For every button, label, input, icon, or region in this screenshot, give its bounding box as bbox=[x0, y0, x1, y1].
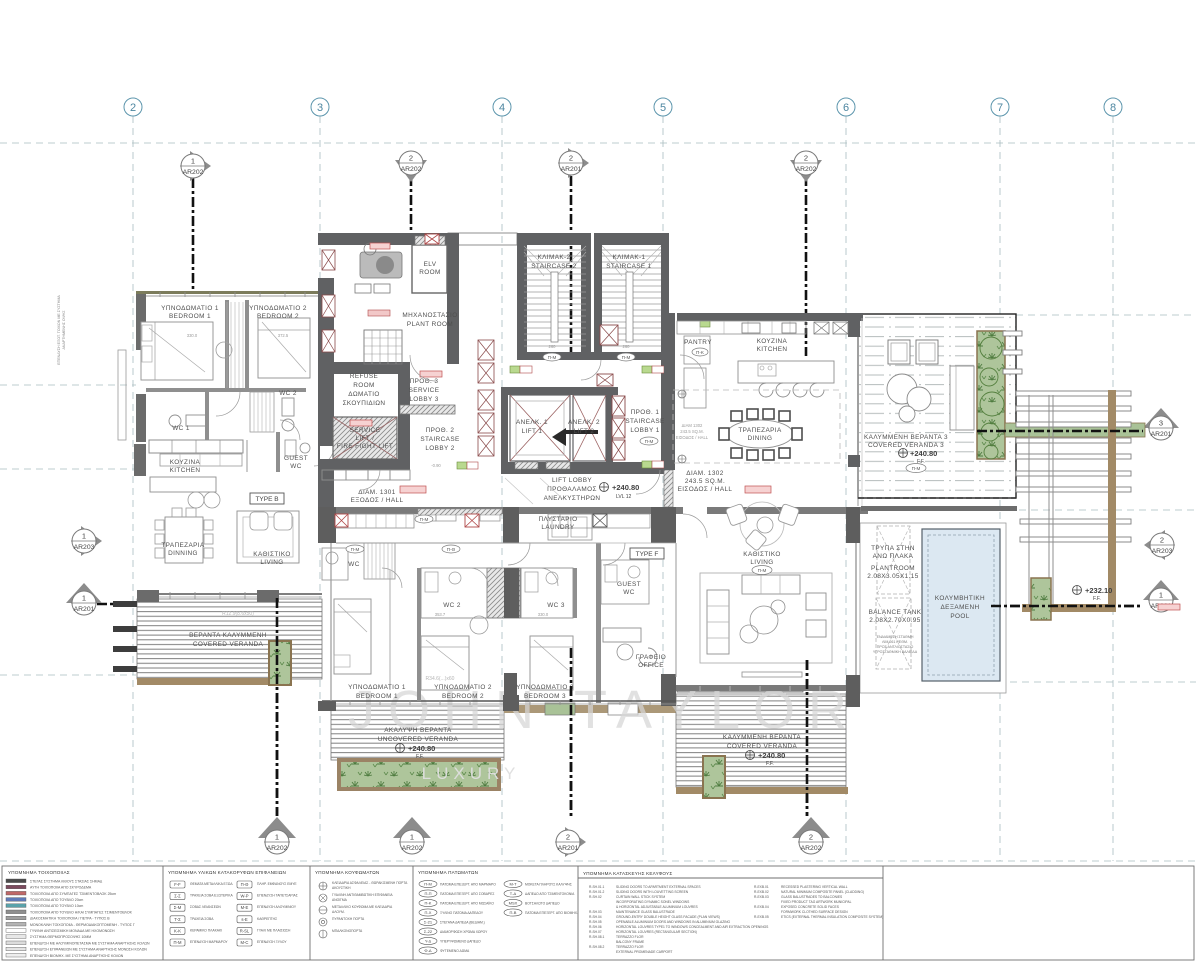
svg-text:BEDROOM 3: BEDROOM 3 bbox=[524, 693, 566, 700]
svg-text:ΔΙΑΜΟΡΦΩΣΗ ΧΡΩΜΑ ΧΩΡΟΥ: ΔΙΑΜΟΡΦΩΣΗ ΧΡΩΜΑ ΧΩΡΟΥ bbox=[440, 930, 488, 934]
svg-text:DINNING: DINNING bbox=[168, 550, 198, 557]
svg-text:ΑΝΕΛΚ. 2: ΑΝΕΛΚ. 2 bbox=[568, 419, 600, 426]
svg-text:ΥΓΡΟΣΤΑΘΜΙΚΗ ΒΑΛΒΙΔΑ: ΥΓΡΟΣΤΑΘΜΙΚΗ ΒΑΛΒΙΔΑ bbox=[873, 650, 918, 654]
svg-text:LIFT 2: LIFT 2 bbox=[574, 428, 595, 435]
svg-text:ΠΑΤΩΜΑ ΕΠΕΞΕΡΓ. ΑΠΟ ΜΑΡΜΑΡΟ: ΠΑΤΩΜΑ ΕΠΕΞΕΡΓ. ΑΠΟ ΜΑΡΜΑΡΟ bbox=[440, 883, 496, 887]
svg-text:Σ-21: Σ-21 bbox=[424, 920, 433, 925]
svg-text:1: 1 bbox=[82, 532, 86, 541]
svg-text:AR201: AR201 bbox=[558, 845, 579, 852]
svg-text:AR202: AR202 bbox=[401, 166, 422, 173]
svg-text:ΚΑΘΙΣΤΙΚΟ: ΚΑΘΙΣΤΙΚΟ bbox=[253, 551, 290, 558]
svg-text:ΔΙΑΚΟΣΜΗΤΙΚΗ ΤΟΙΧΟΠΟΙΙΑ / ΠΕΤΡ: ΔΙΑΚΟΣΜΗΤΙΚΗ ΤΟΙΧΟΠΟΙΙΑ / ΠΕΤΡΑ - ΤΥΠΟΣ … bbox=[30, 917, 110, 921]
svg-text:F-F: F-F bbox=[174, 882, 181, 887]
svg-text:ΤΡΑΧΕΙΑ ΣΟΒΑ ΕΞΩΤΕΡΙΚΑ: ΤΡΑΧΕΙΑ ΣΟΒΑ ΕΞΩΤΕΡΙΚΑ bbox=[190, 894, 233, 898]
svg-text:ΥΠΝΟΔΩΜΑΤΙΟ 2: ΥΠΝΟΔΩΜΑΤΙΟ 2 bbox=[434, 684, 492, 691]
svg-text:ΓΥΑΛΙΝΗ ΑΝΤΙΘΑΜΒΩΤΙΚΗ ΕΠΙΦΑΝΕΙ: ΓΥΑΛΙΝΗ ΑΝΤΙΘΑΜΒΩΤΙΚΗ ΕΠΙΦΑΝΕΙΑ bbox=[332, 893, 393, 897]
svg-text:BALCONY FRAME: BALCONY FRAME bbox=[616, 940, 645, 944]
svg-text:ΚΟΥΖΙΝΑ: ΚΟΥΖΙΝΑ bbox=[170, 459, 201, 466]
svg-text:Μ-Τ: Μ-Τ bbox=[509, 882, 517, 887]
svg-text:TYPE B: TYPE B bbox=[255, 496, 278, 503]
svg-text:AR203: AR203 bbox=[74, 544, 95, 551]
svg-text:LAUNDRY: LAUNDRY bbox=[541, 524, 575, 531]
svg-text:372.5: 372.5 bbox=[278, 333, 289, 338]
svg-text:R-SH.01.2: R-SH.01.2 bbox=[589, 890, 605, 894]
svg-text:ΕΠΕΝΔΥΣΗ ΒΙΟΜΗΧ. ΜΕ ΣΥΣΤΗΜΑ ΑΝ: ΕΠΕΝΔΥΣΗ ΒΙΟΜΗΧ. ΜΕ ΣΥΣΤΗΜΑ ΑΝΑΡΤΗΣΗΣ ΚΟ… bbox=[30, 954, 124, 958]
svg-text:WC 2: WC 2 bbox=[279, 390, 297, 397]
svg-text:ΚΛΙΜΑΚ-1: ΚΛΙΜΑΚ-1 bbox=[612, 254, 645, 261]
svg-text:SLIDING DOORS TO APARTMENT EXT: SLIDING DOORS TO APARTMENT EXTERNAL SPAC… bbox=[616, 885, 701, 889]
svg-text:LUXURY: LUXURY bbox=[422, 764, 521, 783]
svg-text:1: 1 bbox=[82, 594, 86, 603]
svg-text:Π-Μ: Π-Μ bbox=[758, 568, 767, 573]
svg-text:HORIZONTAL LOUVRES (RECTANGULA: HORIZONTAL LOUVRES (RECTANGULAR SECTION) bbox=[616, 930, 697, 934]
svg-text:TYPE F: TYPE F bbox=[636, 551, 659, 558]
svg-text:WC 3: WC 3 bbox=[547, 602, 565, 609]
svg-text:R34.6(...)x60: R34.6(...)x60 bbox=[426, 676, 455, 682]
svg-text:COVERED VERANDA 3: COVERED VERANDA 3 bbox=[868, 442, 944, 449]
svg-text:+240.80: +240.80 bbox=[758, 751, 785, 760]
svg-text:PANTRY: PANTRY bbox=[684, 339, 712, 346]
svg-text:ΠΡΟΘΑΛΑΜΟΣ: ΠΡΟΘΑΛΑΜΟΣ bbox=[547, 486, 597, 493]
svg-text:3: 3 bbox=[1159, 419, 1163, 428]
svg-text:ΥΠΕΡΥΨΩΜΕΝΟ ΔΑΠΕΔΟ: ΥΠΕΡΥΨΩΜΕΝΟ ΔΑΠΕΔΟ bbox=[440, 940, 481, 944]
svg-text:ROOM: ROOM bbox=[353, 382, 374, 389]
svg-text:ΠΡΟΘ. 3: ΠΡΟΘ. 3 bbox=[410, 378, 439, 385]
svg-text:HORIZONTAL LOUVRES TYPE1 TO WI: HORIZONTAL LOUVRES TYPE1 TO WINDOWS CONC… bbox=[616, 925, 769, 929]
svg-text:DINING: DINING bbox=[748, 435, 773, 442]
svg-text:R-SH.07: R-SH.07 bbox=[589, 930, 602, 934]
svg-text:Μ-C: Μ-C bbox=[241, 940, 249, 945]
svg-text:330.0: 330.0 bbox=[538, 612, 549, 617]
svg-text:Κ-Κ: Κ-Κ bbox=[174, 928, 181, 933]
svg-text:ΕΠΕΝΔΥΣΗ ΕΠΙΦΑΝΕΙΩΝ ΜΕ ΣΥΣΤΗΜΑ: ΕΠΕΝΔΥΣΗ ΕΠΙΦΑΝΕΙΩΝ ΜΕ ΣΥΣΤΗΜΑ ΑΝΑΡΤΗΣΗΣ… bbox=[30, 948, 147, 952]
svg-text:Π-Μ: Π-Μ bbox=[420, 517, 429, 522]
svg-text:6: 6 bbox=[843, 102, 849, 114]
svg-text:LIVING: LIVING bbox=[260, 559, 283, 566]
svg-text:TERRAZZO FLOR: TERRAZZO FLOR bbox=[616, 945, 644, 949]
svg-text:ΤΟΙΧΟΠΟΙΙΑ ΑΠΟ ΤΟΥΒΛΟ 20cm: ΤΟΙΧΟΠΟΙΙΑ ΑΠΟ ΤΟΥΒΛΟ 20cm bbox=[30, 898, 83, 902]
svg-text:LOBBY 2: LOBBY 2 bbox=[425, 445, 454, 452]
svg-text:WC: WC bbox=[348, 561, 359, 568]
svg-text:R-SH.04: R-SH.04 bbox=[589, 915, 602, 919]
svg-text:1: 1 bbox=[191, 157, 195, 166]
svg-text:AR202: AR202 bbox=[796, 166, 817, 173]
svg-text:ΜΠΑΛΚΟΝΟΠΟΡΤΑ: ΜΠΑΛΚΟΝΟΠΟΡΤΑ bbox=[332, 929, 363, 933]
svg-text:ΓΥΑΛΙ ΜΕ ΠΛΑΙΣΙΩΣΗ: ΓΥΑΛΙ ΜΕ ΠΛΑΙΣΙΩΣΗ bbox=[257, 928, 291, 932]
svg-text:ΥΠΟΜΝΗΜΑ ΚΑΤΑΣΚΕΥΗΣ ΚΕΛΥΦΟΥΣ: ΥΠΟΜΝΗΜΑ ΚΑΤΑΣΚΕΥΗΣ ΚΕΛΥΦΟΥΣ bbox=[583, 871, 672, 876]
svg-text:ΕΠΕΝΔΥΣΗ ΜΑΡΜΑΡΟΥ: ΕΠΕΝΔΥΣΗ ΜΑΡΜΑΡΟΥ bbox=[190, 940, 228, 944]
svg-text:ΠΑΤΩΜΑ ΕΠΕΞΕΡΓ. ΑΠΟ ΜΩΣΑΪΚΟ: ΠΑΤΩΜΑ ΕΠΕΞΕΡΓ. ΑΠΟ ΜΩΣΑΪΚΟ bbox=[440, 902, 494, 906]
svg-text:AR202: AR202 bbox=[267, 845, 288, 852]
svg-text:260: 260 bbox=[623, 344, 631, 349]
svg-text:F.F.: F.F. bbox=[1093, 596, 1101, 602]
svg-text:EXTERNAL PROMENADE CARPORT: EXTERNAL PROMENADE CARPORT bbox=[616, 950, 672, 954]
svg-text:GLASS BALUSTRADES TO BALCONIES: GLASS BALUSTRADES TO BALCONIES bbox=[781, 895, 843, 899]
svg-text:ΠΑΤΩΜΑ ΕΠΕΞΕΡΓ. ΑΠΟ ΣΟΒΑΡΕΣ: ΠΑΤΩΜΑ ΕΠΕΞΕΡΓ. ΑΠΟ ΣΟΒΑΡΕΣ bbox=[440, 892, 494, 896]
svg-text:ΑΚΟΥΣΤΙΚΗ: ΑΚΟΥΣΤΙΚΗ bbox=[332, 886, 351, 890]
svg-text:ETICS (EXTERNAL THERMAL INSULA: ETICS (EXTERNAL THERMAL INSULATION COMPO… bbox=[781, 915, 883, 919]
svg-text:-0.90: -0.90 bbox=[431, 463, 441, 468]
svg-text:COVERED VERANDA: COVERED VERANDA bbox=[193, 641, 264, 648]
svg-text:Σ-Μ: Σ-Μ bbox=[174, 905, 182, 910]
svg-text:ΠΥΡΑΝΤΟΧΗ ΠΟΡΤΑ: ΠΥΡΑΝΤΟΧΗ ΠΟΡΤΑ bbox=[332, 917, 365, 921]
svg-text:R-SH.05: R-SH.05 bbox=[589, 920, 602, 924]
svg-text:LOBBY 3: LOBBY 3 bbox=[409, 396, 438, 403]
svg-text:SERVICE: SERVICE bbox=[409, 387, 440, 394]
svg-text:ΑΥΤΗ ΤΟΙΧΟΠΟΙΙΑ ΑΠΟ ΣΚΥΡΟΔΕΜΑ: ΑΥΤΗ ΤΟΙΧΟΠΟΙΙΑ ΑΠΟ ΣΚΥΡΟΔΕΜΑ bbox=[30, 886, 92, 890]
svg-text:R-EXB.05: R-EXB.05 bbox=[754, 915, 769, 919]
svg-text:ΘΕΜΑΤΑ ΜΕΤΑΛΛΙΚΑ ΕΞΩΔ: ΘΕΜΑΤΑ ΜΕΤΑΛΛΙΚΑ ΕΞΩΔ bbox=[190, 882, 233, 886]
svg-text:ΤΟΙΧΟΠΟΙΙΑ ΑΠΟ ΤΟΥΒΛΟ Η/ΚΑΙ ΣΥ: ΤΟΙΧΟΠΟΙΙΑ ΑΠΟ ΤΟΥΒΛΟ Η/ΚΑΙ ΣΥΜΠΑΓΕΣ ΤΣΙ… bbox=[30, 910, 133, 914]
svg-text:ΕΠΕΝΔΥΣΗ ΑΛΟΥΜΙΝΙΟΥ: ΕΠΕΝΔΥΣΗ ΑΛΟΥΜΙΝΙΟΥ bbox=[257, 905, 297, 909]
svg-text:ΚΑΛΥΜΜΕΝΗ ΒΕΡΑΝΤΑ 3: ΚΑΛΥΜΜΕΝΗ ΒΕΡΑΝΤΑ 3 bbox=[864, 434, 948, 441]
svg-text:W-P: W-P bbox=[240, 894, 248, 899]
svg-text:LIFT 1: LIFT 1 bbox=[522, 428, 543, 435]
svg-text:2: 2 bbox=[804, 154, 808, 163]
svg-text:ΥΠΟΜΝΗΜΑ ΠΑΤΩΜΑΤΩΝ: ΥΠΟΜΝΗΜΑ ΠΑΤΩΜΑΤΩΝ bbox=[418, 870, 478, 875]
svg-text:ΔΙΑΜ 1302: ΔΙΑΜ 1302 bbox=[682, 423, 703, 428]
svg-text:Π-Μ: Π-Μ bbox=[424, 882, 432, 887]
svg-text:AR202: AR202 bbox=[801, 845, 822, 852]
svg-text:POOL: POOL bbox=[950, 613, 969, 620]
svg-text:2: 2 bbox=[569, 154, 573, 163]
svg-text:SLIDING DOORS WITH LOUVETTING: SLIDING DOORS WITH LOUVETTING SCREEN bbox=[616, 890, 689, 894]
svg-text:1: 1 bbox=[410, 833, 414, 842]
svg-text:TERRAZZO FLOR: TERRAZZO FLOR bbox=[616, 935, 644, 939]
svg-text:Π-Θ: Π-Θ bbox=[447, 547, 456, 552]
svg-text:2.08Χ3.05Χ1.15: 2.08Χ3.05Χ1.15 bbox=[867, 573, 918, 580]
svg-text:260: 260 bbox=[549, 344, 557, 349]
svg-text:+240.80: +240.80 bbox=[910, 449, 937, 458]
svg-text:ΠΡΟΣ ΑΝΤΛΙΟΣΤΑΣΙΟ: ΠΡΟΣ ΑΝΤΛΙΟΣΤΑΣΙΟ bbox=[877, 645, 914, 649]
svg-text:LOBBY 1: LOBBY 1 bbox=[630, 427, 659, 434]
svg-text:Υ-Δ: Υ-Δ bbox=[425, 939, 432, 944]
svg-text:ΕΙΣΟΔΟΣ / HALL: ΕΙΣΟΔΟΣ / HALL bbox=[678, 486, 733, 493]
svg-text:GUEST: GUEST bbox=[617, 581, 641, 588]
svg-text:Π-Κ: Π-Κ bbox=[696, 350, 705, 355]
svg-text:ΥΠΝΟΔΩΜΑΤΙΟ 3: ΥΠΝΟΔΩΜΑΤΙΟ 3 bbox=[516, 684, 574, 691]
svg-text:ΚΟΛΥΜΒΗΤΙΚΗ: ΚΟΛΥΜΒΗΤΙΚΗ bbox=[935, 595, 985, 602]
svg-text:GUEST: GUEST bbox=[284, 455, 308, 462]
svg-text:+232.10: +232.10 bbox=[1085, 586, 1112, 595]
svg-text:STAIRCASE: STAIRCASE bbox=[420, 436, 459, 443]
svg-text:ΜΟΝΟΚΛΙΝΗ ΤΟΙΧΟΠΟΙΙΑ - ΘΕΡΜΟΔΙ: ΜΟΝΟΚΛΙΝΗ ΤΟΙΧΟΠΟΙΙΑ - ΘΕΡΜΟΔΙΑΚΟΠΤΟΜΕΝΗ… bbox=[30, 923, 135, 927]
svg-text:OPENABLE ALUMINIUM DOORS AND W: OPENABLE ALUMINIUM DOORS AND WINDOWS IN … bbox=[616, 920, 731, 924]
svg-text:330.0: 330.0 bbox=[187, 333, 198, 338]
svg-text:5: 5 bbox=[660, 102, 666, 114]
svg-text:COVERED VERANDA: COVERED VERANDA bbox=[727, 743, 798, 750]
svg-text:2: 2 bbox=[409, 154, 413, 163]
svg-text:ΑΚΑΛΥΨΗ ΒΕΡΑΝΤΑ: ΑΚΑΛΥΨΗ ΒΕΡΑΝΤΑ bbox=[384, 727, 452, 734]
svg-text:2: 2 bbox=[566, 833, 570, 842]
svg-text:LIFT /: LIFT / bbox=[356, 435, 375, 442]
svg-text:ΦΥΤΕΜΕΝΟ ΔΩΜΑ: ΦΥΤΕΜΕΝΟ ΔΩΜΑ bbox=[440, 949, 470, 953]
svg-text:Π-Μ: Π-Μ bbox=[645, 439, 654, 444]
svg-text:243.5 SQ.M.: 243.5 SQ.M. bbox=[685, 478, 725, 485]
svg-text:OFFICE: OFFICE bbox=[638, 662, 664, 669]
svg-text:Π-Θ: Π-Θ bbox=[241, 882, 249, 887]
svg-text:ΑΝΟΙΓΜΑ: ΑΝΟΙΓΜΑ bbox=[332, 898, 348, 902]
svg-text:7: 7 bbox=[997, 102, 1003, 114]
svg-text:STAIRCASE 1: STAIRCASE 1 bbox=[606, 263, 652, 270]
svg-text:8: 8 bbox=[1110, 102, 1116, 114]
svg-text:REFUSE: REFUSE bbox=[350, 373, 378, 380]
svg-text:F.F.: F.F. bbox=[766, 761, 774, 767]
svg-text:ΠΡΟΘ. 1: ΠΡΟΘ. 1 bbox=[631, 409, 660, 416]
svg-text:Π-Π: Π-Π bbox=[424, 891, 431, 896]
svg-text:ΣΚΟΥΠΙΔΙΩΝ: ΣΚΟΥΠΙΔΙΩΝ bbox=[343, 400, 386, 407]
svg-text:ΥΠΟΜΝΗΜΑ ΚΟΥΦΩΜΑΤΩΝ: ΥΠΟΜΝΗΜΑ ΚΟΥΦΩΜΑΤΩΝ bbox=[315, 870, 379, 875]
svg-text:AR201: AR201 bbox=[1151, 431, 1172, 438]
svg-text:ΚΕΡΑΜΙΚΟ ΠΛΑΚΑΚΙ: ΚΕΡΑΜΙΚΟ ΠΛΑΚΑΚΙ bbox=[190, 928, 222, 932]
svg-text:R-SH.01.1: R-SH.01.1 bbox=[589, 885, 605, 889]
svg-text:+240.80: +240.80 bbox=[408, 744, 435, 753]
svg-text:ΤΡΥΠΑ ΣΤΗΝ: ΤΡΥΠΑ ΣΤΗΝ bbox=[871, 545, 915, 552]
svg-text:ΑΝΑΡΤΗΜΕΝΗΣ ΟΨΗΣ: ΑΝΑΡΤΗΜΕΝΗΣ ΟΨΗΣ bbox=[62, 310, 66, 350]
svg-text:STAIRCASE 2: STAIRCASE 2 bbox=[531, 263, 577, 270]
svg-text:R-EXB.03: R-EXB.03 bbox=[754, 895, 769, 899]
svg-text:ΕΞΟΔΟΣ / HALL: ΕΞΟΔΟΣ / HALL bbox=[351, 497, 404, 504]
svg-text:R-SH.03: R-SH.03 bbox=[589, 910, 602, 914]
svg-text:ΔΙΑΜ. 1302: ΔΙΑΜ. 1302 bbox=[686, 470, 723, 477]
svg-text:ΥΠΝΟΔΩΜΑΤΙΟ 2: ΥΠΝΟΔΩΜΑΤΙΟ 2 bbox=[249, 305, 307, 312]
svg-text:INCORPORATING DYNAMIC SONEL WI: INCORPORATING DYNAMIC SONEL WINDOWS bbox=[616, 900, 690, 904]
svg-text:ΠΛΗΡ. ΕΜΦΑΝΟΥΣ ΕΜΥΕ: ΠΛΗΡ. ΕΜΦΑΝΟΥΣ ΕΜΥΕ bbox=[257, 882, 297, 886]
svg-text:WC: WC bbox=[623, 589, 634, 596]
svg-text:BEDROOM 2: BEDROOM 2 bbox=[257, 313, 299, 320]
svg-text:ΕΠΕΝΔΥΣΗ ΜΕ ΑΛΟΥΜΙΝΟΠΕΤΑΣΜΑ ΜΕ: ΕΠΕΝΔΥΣΗ ΜΕ ΑΛΟΥΜΙΝΟΠΕΤΑΣΜΑ ΜΕ ΣΥΣΤΗΜΑ Α… bbox=[30, 941, 150, 945]
svg-text:ΜΕΤΑΛΛΙΚΟ ΚΟΥΦΩΜΑ ΜΕ ΚΛΕΙΔΑΡΙΑ: ΜΕΤΑΛΛΙΚΟ ΚΟΥΦΩΜΑ ΜΕ ΚΛΕΙΔΑΡΙΑ bbox=[332, 905, 393, 909]
svg-text:ΓΡΑΦΕΙΟ: ΓΡΑΦΕΙΟ bbox=[636, 654, 666, 661]
svg-text:ΓΥΨΙΝΗ ΑΝΤΙΣΕΙΣΜΙΚΗ ΜΟΝΑΔΑ ΜΕ: ΓΥΨΙΝΗ ΑΝΤΙΣΕΙΣΜΙΚΗ ΜΟΝΑΔΑ ΜΕ ΗΧΟΜΟΝΩΣΗ bbox=[30, 929, 115, 933]
svg-text:1: 1 bbox=[275, 833, 279, 842]
svg-text:ΣΥΣΤΗΜΑ ΘΕΡΜΟΠΡΟΣΟΨΗΣ 10ΜΜ: ΣΥΣΤΗΜΑ ΘΕΡΜΟΠΡΟΣΟΨΗΣ 10ΜΜ bbox=[30, 935, 91, 939]
svg-text:PLANT ROOM: PLANT ROOM bbox=[407, 321, 453, 328]
svg-text:EXPOSED CONCRETE SOLID FACES: EXPOSED CONCRETE SOLID FACES bbox=[781, 905, 840, 909]
svg-text:ΒΟΤΣΑΛΩΤΟ ΔΑΠΕΔΟ: ΒΟΤΣΑΛΩΤΟ ΔΑΠΕΔΟ bbox=[525, 902, 560, 906]
svg-text:+240.80: +240.80 bbox=[612, 483, 639, 492]
svg-text:NATURAL MINIMUM COMPOSITE PANE: NATURAL MINIMUM COMPOSITE PANEL (CLADDIN… bbox=[781, 890, 864, 894]
svg-text:BEDROOM 2: BEDROOM 2 bbox=[442, 693, 484, 700]
svg-text:ΜΗΧΑΝΟΣΤΑΣΙΟ: ΜΗΧΑΝΟΣΤΑΣΙΟ bbox=[402, 312, 457, 319]
svg-text:2.08Χ2.70Χ0.95: 2.08Χ2.70Χ0.95 bbox=[869, 617, 920, 624]
svg-text:ΕΠΕΝΔΥΣΗ ΞΥΛΟΥ: ΕΠΕΝΔΥΣΗ ΞΥΛΟΥ bbox=[257, 940, 287, 944]
svg-text:ΥΠΝΟΔΩΜΑΤΙΟ 1: ΥΠΝΟΔΩΜΑΤΙΟ 1 bbox=[161, 305, 219, 312]
svg-text:Π-Μ: Π-Μ bbox=[351, 547, 360, 552]
svg-text:Π-Μ: Π-Μ bbox=[548, 355, 557, 360]
svg-text:3: 3 bbox=[317, 102, 323, 114]
svg-text:ΣΟΒΑΣ ΛΕΙΑΝΣΕΩΝ: ΣΟΒΑΣ ΛΕΙΑΝΣΕΩΝ bbox=[190, 905, 221, 909]
svg-text:ΤΟΙΧΟΠΟΙΙΑ ΑΠΟ ΣΥΜΠΑΓΕΣ ΤΣΙΜΕΝ: ΤΟΙΧΟΠΟΙΙΑ ΑΠΟ ΣΥΜΠΑΓΕΣ ΤΣΙΜΕΝΤΟΒΛΟΚ 25c… bbox=[30, 892, 116, 896]
svg-text:ΚΛΙΜΑΚ-2: ΚΛΙΜΑΚ-2 bbox=[537, 254, 570, 261]
svg-text:STAIRCASE: STAIRCASE bbox=[625, 418, 664, 425]
svg-text:ΠΑΤΩΜΑ ΕΠΕΞΕΡΓ. ΑΠΟ ΒΙΟΜΗΧ.: ΠΑΤΩΜΑ ΕΠΕΞΕΡΓ. ΑΠΟ ΒΙΟΜΗΧ. bbox=[525, 911, 578, 915]
svg-text:353.7: 353.7 bbox=[435, 612, 446, 617]
svg-text:BALANCE TANK: BALANCE TANK bbox=[869, 609, 922, 616]
svg-text:ΑΝΕΛΚ. 1: ΑΝΕΛΚ. 1 bbox=[516, 419, 548, 426]
svg-text:Π-Β: Π-Β bbox=[510, 910, 517, 915]
svg-text:ROOM: ROOM bbox=[419, 269, 440, 276]
svg-text:4: 4 bbox=[499, 102, 505, 114]
svg-text:R-SL: R-SL bbox=[240, 928, 250, 933]
svg-text:ΕΙΣΟΔΟΣ / HALL: ΕΙΣΟΔΟΣ / HALL bbox=[676, 435, 709, 440]
svg-text:FIXED PRODUCT TAG ARTWORK MUNI: FIXED PRODUCT TAG ARTWORK MUNICIPAL bbox=[781, 900, 852, 904]
svg-text:Σ-22: Σ-22 bbox=[424, 929, 433, 934]
svg-text:CURTAIN WALL STICK SYSTEM: CURTAIN WALL STICK SYSTEM bbox=[616, 895, 665, 899]
svg-text:WC 2: WC 2 bbox=[443, 602, 461, 609]
svg-text:ΑΛΟΥΜ.: ΑΛΟΥΜ. bbox=[332, 910, 345, 914]
svg-text:ΚΑΛΥΜΜΕΝΗ ΒΕΡΑΝΤΑ: ΚΑΛΥΜΜΕΝΗ ΒΕΡΑΝΤΑ bbox=[723, 734, 802, 741]
svg-text:Π-Μ: Π-Μ bbox=[622, 355, 631, 360]
svg-text:ΑΝΩ ΠΛΑΚΑ: ΑΝΩ ΠΛΑΚΑ bbox=[873, 553, 914, 560]
svg-text:Σ-Σ: Σ-Σ bbox=[174, 894, 181, 899]
svg-text:ΤΡΑΠΕΖΑΡΙΑ: ΤΡΑΠΕΖΑΡΙΑ bbox=[738, 427, 782, 434]
svg-text:R-EXB.02: R-EXB.02 bbox=[754, 890, 769, 894]
svg-text:AR202: AR202 bbox=[402, 845, 423, 852]
svg-text:RECESSED PLASTERING VERTICAL W: RECESSED PLASTERING VERTICAL WALL bbox=[781, 885, 848, 889]
svg-text:LIVING: LIVING bbox=[750, 559, 773, 566]
svg-text:ΕΠΕΝΔΥΣΗ ΤΑΠΕΤΣΑΡΙΑΣ: ΕΠΕΝΔΥΣΗ ΤΑΠΕΤΣΑΡΙΑΣ bbox=[257, 894, 298, 898]
svg-text:GROUND-ENTRY DOUBLE HEIGHT GLA: GROUND-ENTRY DOUBLE HEIGHT GLASS FACADE … bbox=[616, 915, 720, 919]
svg-text:Π-Κ: Π-Κ bbox=[425, 901, 432, 906]
svg-text:AR201: AR201 bbox=[561, 166, 582, 173]
svg-text:ELV: ELV bbox=[424, 261, 437, 268]
svg-text:AR203: AR203 bbox=[1152, 548, 1173, 555]
svg-text:ΕΝΔΙΑΜΕΣΗ ΣΤΑΘΜΗ: ΕΝΔΙΑΜΕΣΗ ΣΤΑΘΜΗ bbox=[877, 635, 914, 639]
svg-text:2: 2 bbox=[130, 102, 136, 114]
svg-text:FORMWORK CLOTHED SURFACE DESIG: FORMWORK CLOTHED SURFACE DESIGN bbox=[781, 910, 848, 914]
svg-text:ΚΛΕΙΔΑΡΙΑ ΑΣΦΑΛΕΙΑΣ - ΘΩΡΑΚΙΣΜ: ΚΛΕΙΔΑΡΙΑ ΑΣΦΑΛΕΙΑΣ - ΘΩΡΑΚΙΣΜΕΝΗ ΠΟΡΤΑ bbox=[332, 881, 408, 885]
svg-text:ΔΙΑΜ. 1301: ΔΙΑΜ. 1301 bbox=[358, 489, 395, 496]
svg-text:R-SH.08.2: R-SH.08.2 bbox=[589, 945, 605, 949]
svg-text:243.5 SQ.M.: 243.5 SQ.M. bbox=[680, 429, 704, 434]
svg-text:R-SH.08.1: R-SH.08.1 bbox=[589, 935, 605, 939]
svg-text:UNCOVERED VERANDA: UNCOVERED VERANDA bbox=[378, 736, 459, 743]
svg-text:AR201: AR201 bbox=[74, 606, 95, 613]
svg-text:Π-Χ: Π-Χ bbox=[425, 910, 432, 915]
svg-text:ΞΥΛΙΝΟ ΠΑΤΩΜΑ ΔΑΠΕΔΟΥ: ΞΥΛΙΝΟ ΠΑΤΩΜΑ ΔΑΠΕΔΟΥ bbox=[440, 911, 484, 915]
svg-text:Π-Μ: Π-Μ bbox=[174, 940, 182, 945]
svg-text:ΠΡΟΘ. 2: ΠΡΟΘ. 2 bbox=[426, 427, 455, 434]
svg-text:Π-Μ: Π-Μ bbox=[912, 466, 921, 471]
svg-text:ΣΤΕΓΑΣ ΣΥΣΤΗΜΑ ΛΙΘΟΥΣ ΣΤΑΣΙΑΣ: ΣΤΕΓΑΣ ΣΥΣΤΗΜΑ ΛΙΘΟΥΣ ΣΤΑΣΙΑΣ ΣΗΜΑΔ bbox=[30, 879, 103, 883]
svg-text:ΥΠΝΟΔΩΜΑΤΙΟ 1: ΥΠΝΟΔΩΜΑΤΙΟ 1 bbox=[348, 684, 406, 691]
svg-text:KITCHEN: KITCHEN bbox=[757, 346, 788, 353]
svg-text:Τ-Σ: Τ-Σ bbox=[174, 917, 181, 922]
svg-text:ΔΕΞΑΜΕΝΗ: ΔΕΞΑΜΕΝΗ bbox=[941, 604, 980, 611]
svg-text:ΣΤΕΓΑΝΑ ΔΑΠΕΔΑ (ΒΕΔΙΑΜ.): ΣΤΕΓΑΝΑ ΔΑΠΕΔΑ (ΒΕΔΙΑΜ.) bbox=[440, 921, 485, 925]
svg-text:Τ-Δ: Τ-Δ bbox=[510, 891, 517, 896]
svg-text:ΑΝΕΛΚΥΣΤΗΡΩΝ: ΑΝΕΛΚΥΣΤΗΡΩΝ bbox=[544, 495, 601, 502]
svg-text:ΕΠΕΝΔΥΣΗ ΕΞΩΤ. ΤΟΙΧΩΝ ΜΕ ΣΥΣΤΗ: ΕΠΕΝΔΥΣΗ ΕΞΩΤ. ΤΟΙΧΩΝ ΜΕ ΣΥΣΤΗΜΑ bbox=[57, 295, 61, 365]
svg-text:ΤΡΑΠΕΖΑΡΙΑ: ΤΡΑΠΕΖΑΡΙΑ bbox=[161, 542, 205, 549]
svg-text:R-EXB.01: R-EXB.01 bbox=[754, 885, 769, 889]
svg-text:ΚΑΘΡΕΠΤΗΣ: ΚΑΘΡΕΠΤΗΣ bbox=[257, 917, 277, 921]
svg-text:LIFT LOBBY: LIFT LOBBY bbox=[552, 477, 592, 484]
svg-text:R-EXB.04: R-EXB.04 bbox=[754, 905, 769, 909]
svg-text:& HORIZONTAL ADJUSTABLE ALUMIN: & HORIZONTAL ADJUSTABLE ALUMINIUM LOUVRE… bbox=[616, 905, 698, 909]
svg-text:R12.9(8.6x50): R12.9(8.6x50) bbox=[222, 611, 254, 617]
svg-text:ΔΑΠΕΔΟ ΑΠΟ ΤΣΙΜΕΝΤΟΚΟΝΙΑ: ΔΑΠΕΔΟ ΑΠΟ ΤΣΙΜΕΝΤΟΚΟΝΙΑ bbox=[525, 892, 575, 896]
svg-text:Μ-Ε: Μ-Ε bbox=[241, 905, 249, 910]
svg-text:BEDROOM 1: BEDROOM 1 bbox=[356, 693, 398, 700]
svg-text:ΔΩΜΑΤΙΟ: ΔΩΜΑΤΙΟ bbox=[348, 391, 380, 398]
svg-text:FIRE FIGHT LIFT: FIRE FIGHT LIFT bbox=[337, 443, 393, 450]
svg-text:MSX: MSX bbox=[509, 901, 518, 906]
svg-text:s-E: s-E bbox=[241, 917, 247, 922]
svg-text:WC: WC bbox=[290, 463, 301, 470]
svg-text:BEDROOM 1: BEDROOM 1 bbox=[169, 313, 211, 320]
svg-text:ΒΕΡΑΝΤΑ ΚΑΛΥΜΜΕΝΗ: ΒΕΡΑΝΤΑ ΚΑΛΥΜΜΕΝΗ bbox=[189, 632, 267, 639]
svg-text:ΤΟΙΧΟΠΟΙΙΑ ΑΠΟ ΤΟΥΒΛΟ 10cm: ΤΟΙΧΟΠΟΙΙΑ ΑΠΟ ΤΟΥΒΛΟ 10cm bbox=[30, 904, 83, 908]
svg-text:PLANTROOM: PLANTROOM bbox=[871, 565, 915, 572]
svg-text:Φ-Δ: Φ-Δ bbox=[424, 948, 432, 953]
svg-text:1: 1 bbox=[1159, 591, 1163, 600]
svg-text:MAINTENANCE GLASS BALUSTRADE: MAINTENANCE GLASS BALUSTRADE bbox=[616, 910, 676, 914]
svg-text:WC 1: WC 1 bbox=[172, 425, 190, 432]
svg-text:AR202: AR202 bbox=[183, 169, 204, 176]
svg-text:2: 2 bbox=[1160, 536, 1164, 545]
svg-text:F.F.: F.F. bbox=[416, 754, 424, 760]
svg-text:SERVICE: SERVICE bbox=[350, 427, 381, 434]
svg-text:ΚΟΥΖΙΝΑ: ΚΟΥΖΙΝΑ bbox=[757, 338, 788, 345]
svg-text:R-SH.02: R-SH.02 bbox=[589, 895, 602, 899]
svg-text:ΥΠΟΜΝΗΜΑ ΥΛΙΚΩΝ ΚΑΤΑΚΟΡΥΦΩΝ ΕΠ: ΥΠΟΜΝΗΜΑ ΥΛΙΚΩΝ ΚΑΤΑΚΟΡΥΦΩΝ ΕΠΙΦΑΝΕΙΩΝ bbox=[168, 870, 286, 875]
svg-text:ΤΡΑΧΕΙΑ ΣΟΒΑ: ΤΡΑΧΕΙΑ ΣΟΒΑ bbox=[190, 917, 214, 921]
svg-text:ΚΑΘΙΣΤΙΚΟ: ΚΑΘΙΣΤΙΚΟ bbox=[743, 551, 780, 558]
svg-text:KITCHEN: KITCHEN bbox=[170, 467, 201, 474]
svg-text:2: 2 bbox=[809, 833, 813, 842]
svg-text:LVL 12: LVL 12 bbox=[616, 494, 632, 500]
svg-text:R-SH.06: R-SH.06 bbox=[589, 925, 602, 929]
svg-text:ΛΙΜ.261 ΡΕΘΜ.: ΛΙΜ.261 ΡΕΘΜ. bbox=[882, 640, 908, 644]
svg-text:ΠΛΥΣΤΑΡΙΟ: ΠΛΥΣΤΑΡΙΟ bbox=[539, 516, 578, 523]
svg-text:ΥΠΟΜΝΗΜΑ ΤΟΙΧΟΠΟΙΙΑΣ: ΥΠΟΜΝΗΜΑ ΤΟΙΧΟΠΟΙΙΑΣ bbox=[8, 870, 70, 875]
svg-text:ΜΟΚΕΤΑ ΠΛΗΡΟΥΣ ΚΑΛΥΨΗΣ: ΜΟΚΕΤΑ ΠΛΗΡΟΥΣ ΚΑΛΥΨΗΣ bbox=[525, 883, 572, 887]
